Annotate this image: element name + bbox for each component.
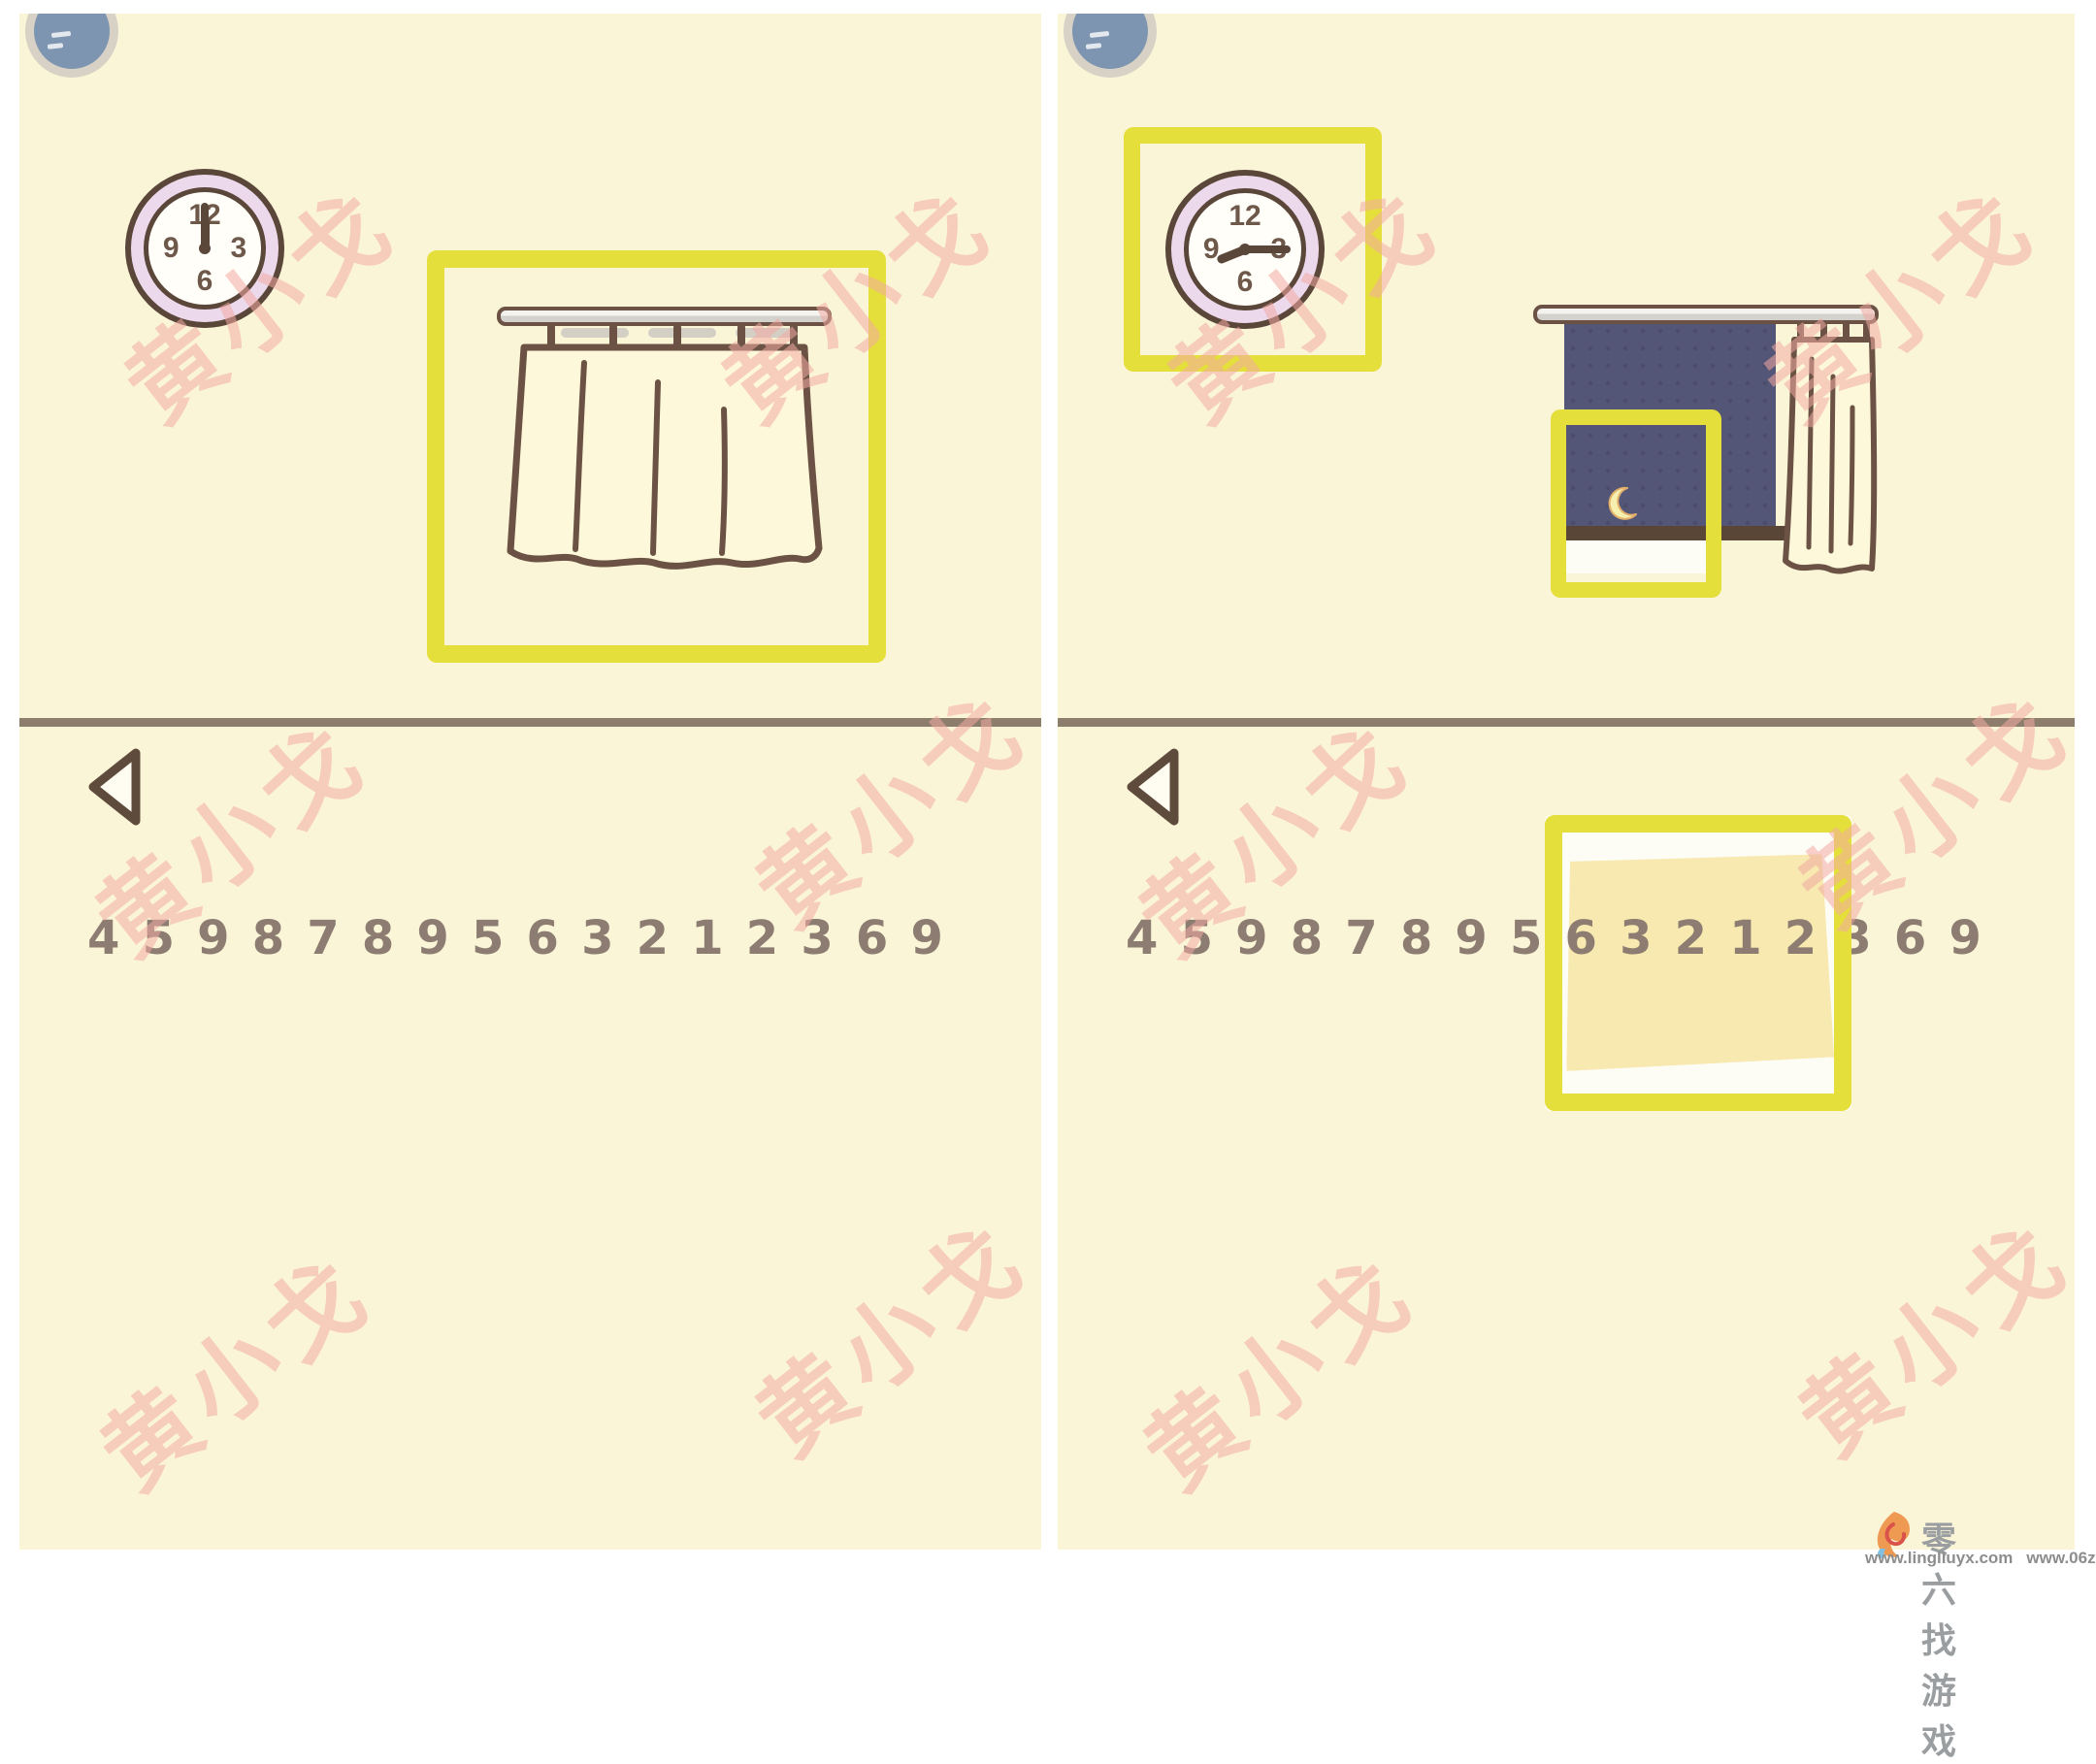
level-badge[interactable] — [25, 14, 118, 78]
highlight-box-moon — [1551, 409, 1721, 598]
number[interactable]: 9 — [1235, 915, 1267, 962]
number[interactable]: 5 — [1181, 915, 1213, 962]
number[interactable]: 8 — [1291, 915, 1323, 962]
clock-number-9: 9 — [163, 232, 180, 265]
divider-line — [19, 718, 1041, 727]
back-button[interactable] — [1122, 745, 1184, 829]
number[interactable]: 6 — [1894, 915, 1926, 962]
site-url-left: www.lingliuyx.com — [1865, 1549, 2013, 1568]
panel-left-step1: 12 3 6 9 45987 — [19, 14, 1041, 1550]
number[interactable]: 9 — [1455, 915, 1487, 962]
watermark-text: 黄小戈 — [724, 656, 1041, 952]
number[interactable]: 5 — [143, 915, 175, 962]
watermark-text: 黄小戈 — [1112, 1219, 1438, 1515]
number[interactable]: 7 — [307, 915, 339, 962]
panel-right-step2: 12 3 6 9 4598789563212369 黄小戈 黄小戈 黄小戈 黄小… — [1058, 14, 2075, 1550]
highlight-box-curtain — [427, 250, 886, 663]
watermark-text: 黄小戈 — [724, 1185, 1041, 1481]
badge-glyph — [51, 31, 71, 38]
level-badge[interactable] — [1064, 14, 1157, 78]
number[interactable]: 3 — [801, 915, 833, 962]
number[interactable]: 9 — [1949, 915, 1981, 962]
badge-glyph — [1086, 43, 1101, 49]
number[interactable]: 8 — [252, 915, 284, 962]
highlight-box-answer — [1545, 815, 1851, 1111]
number[interactable]: 8 — [362, 915, 394, 962]
clock-number-6: 6 — [197, 265, 213, 298]
page: { "watermark": { "text": "黄小戈", "color":… — [0, 0, 2096, 1572]
divider-line — [1058, 718, 2075, 727]
number[interactable]: 6 — [527, 915, 559, 962]
wall-clock[interactable]: 12 3 6 9 — [125, 169, 284, 328]
number[interactable]: 4 — [87, 915, 119, 962]
highlight-box-clock — [1124, 127, 1382, 372]
site-urls: www.lingliuyx.com www.06zyx.com — [1865, 1549, 2096, 1568]
number-row: 4598789563212369 — [87, 914, 943, 963]
number[interactable]: 1 — [691, 915, 723, 962]
minute-hand — [201, 203, 209, 248]
number[interactable]: 8 — [1400, 915, 1432, 962]
curtain-open[interactable] — [1782, 318, 1881, 582]
badge-glyph — [48, 43, 63, 49]
number[interactable]: 3 — [581, 915, 613, 962]
number[interactable]: 4 — [1126, 915, 1158, 962]
watermark-text: 黄小戈 — [1767, 1185, 2075, 1481]
back-button[interactable] — [83, 745, 146, 829]
number[interactable]: 6 — [856, 915, 888, 962]
badge-glyph — [1090, 31, 1109, 38]
number[interactable]: 2 — [746, 915, 778, 962]
number[interactable]: 5 — [1510, 915, 1542, 962]
site-url-right: www.06zyx.com — [2026, 1549, 2096, 1568]
number[interactable]: 9 — [910, 915, 942, 962]
watermark-text: 黄小戈 — [69, 1219, 395, 1515]
clock-pivot — [199, 243, 211, 254]
number[interactable]: 9 — [197, 915, 229, 962]
number[interactable]: 5 — [472, 915, 504, 962]
number[interactable]: 2 — [637, 915, 669, 962]
clock-number-3: 3 — [230, 232, 246, 265]
number[interactable]: 9 — [416, 915, 448, 962]
number[interactable]: 7 — [1345, 915, 1377, 962]
clock-face: 12 3 6 9 — [144, 187, 266, 310]
